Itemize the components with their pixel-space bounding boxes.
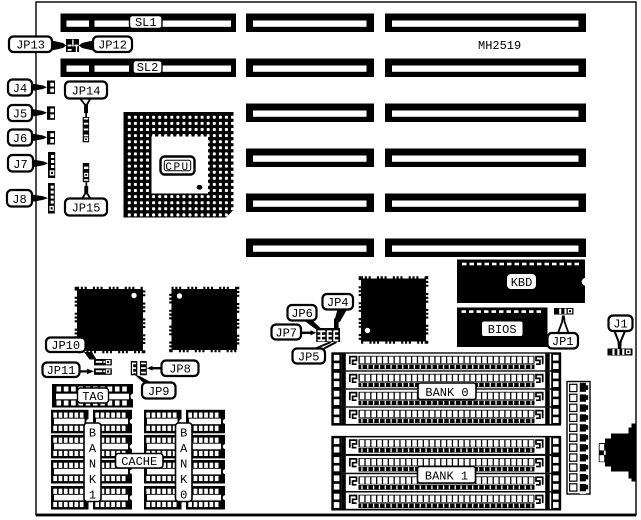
svg-text:N: N [89,458,96,472]
svg-text:JP11: JP11 [47,364,76,378]
svg-text:B: B [180,427,187,441]
svg-text:J1: J1 [613,318,627,332]
svg-text:BANK 0: BANK 0 [425,386,468,400]
svg-text:J5: J5 [13,108,27,122]
svg-text:J6: J6 [13,132,27,146]
svg-text:J8: J8 [12,193,26,207]
svg-text:K: K [89,473,97,487]
svg-text:JP9: JP9 [148,385,170,399]
svg-text:B: B [89,427,96,441]
svg-text:JP6: JP6 [291,307,313,321]
svg-text:J4: J4 [13,82,27,96]
svg-text:JP8: JP8 [169,363,191,377]
svg-text:1: 1 [89,489,96,503]
svg-text:JP12: JP12 [98,39,127,53]
svg-text:SL1: SL1 [135,16,157,30]
svg-text:J7: J7 [13,158,27,172]
svg-text:JP4: JP4 [327,296,349,310]
svg-text:0: 0 [180,489,187,503]
svg-text:JP10: JP10 [51,339,80,353]
svg-text:JP5: JP5 [298,350,320,364]
svg-text:JP15: JP15 [72,202,101,216]
svg-text:A: A [89,442,97,456]
svg-text:JP14: JP14 [72,85,101,99]
svg-text:BANK 1: BANK 1 [425,470,468,484]
svg-text:TAG: TAG [82,390,104,404]
svg-text:BIOS: BIOS [488,323,517,337]
svg-text:JP1: JP1 [552,335,574,349]
svg-text:KBD: KBD [511,276,533,290]
svg-text:N: N [180,458,187,472]
svg-text:CACHE: CACHE [121,455,157,469]
svg-text:A: A [180,442,188,456]
svg-text:K: K [180,473,188,487]
svg-text:JP7: JP7 [275,326,297,340]
svg-text:CPU: CPU [165,162,189,174]
svg-text:SL2: SL2 [137,61,159,75]
svg-text:MH2519: MH2519 [478,39,521,53]
svg-text:JP13: JP13 [16,39,45,53]
